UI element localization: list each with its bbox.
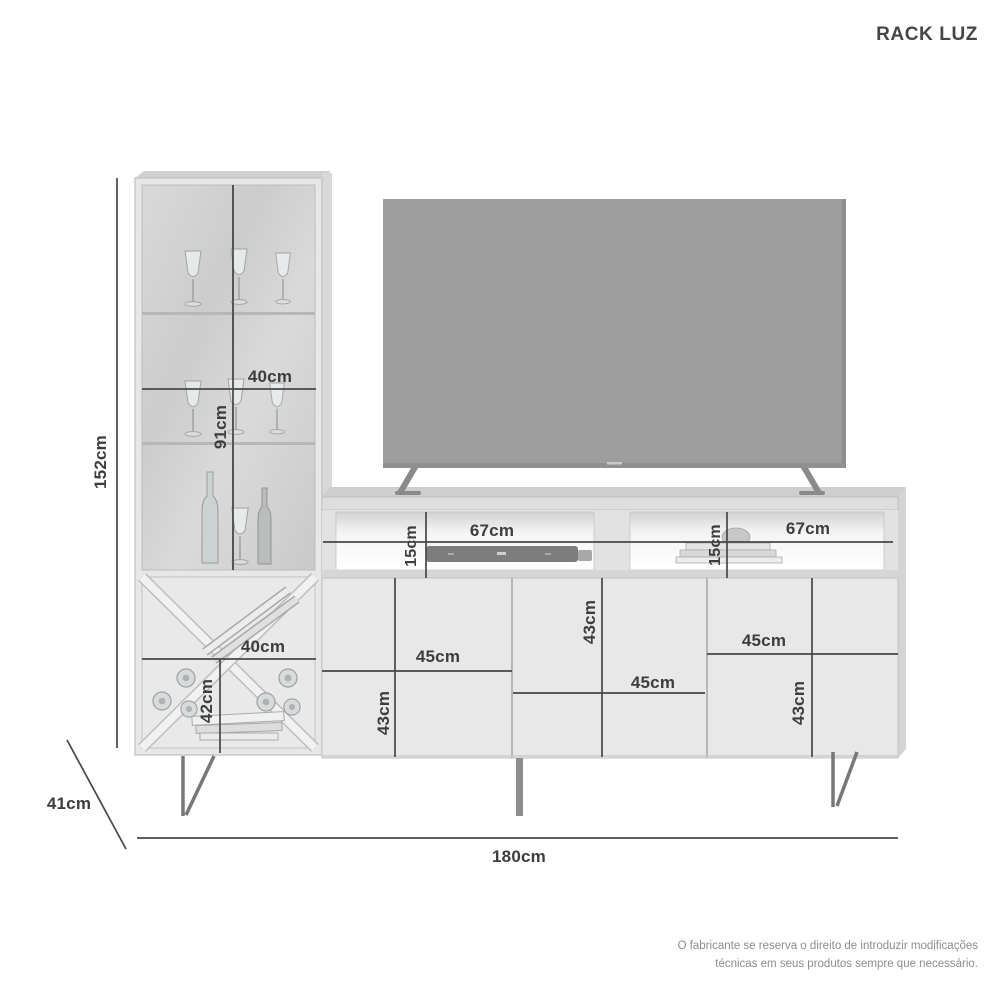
legs bbox=[183, 752, 857, 816]
tv-logo bbox=[607, 462, 622, 465]
label-winerack-height: 42cm bbox=[197, 679, 217, 723]
stand-right-side bbox=[898, 487, 906, 758]
label-lower-width: 40cm bbox=[241, 637, 285, 657]
cabinet-top-surface bbox=[135, 171, 331, 178]
tv bbox=[383, 199, 846, 495]
label-door-height-right: 43cm bbox=[789, 681, 809, 725]
disclaimer-line-1: O fabricante se reserva o direito de int… bbox=[678, 938, 978, 956]
soundbar bbox=[426, 546, 592, 562]
label-shelf-width-left: 67cm bbox=[470, 521, 514, 541]
page-title: RACK LUZ bbox=[876, 24, 978, 46]
manufacturer-disclaimer: O fabricante se reserva o direito de int… bbox=[678, 938, 978, 974]
disclaimer-line-2: técnicas em seus produtos sempre que nec… bbox=[678, 956, 978, 974]
label-shelf-height-right: 15cm bbox=[707, 524, 725, 566]
label-total-width: 180cm bbox=[492, 847, 546, 867]
label-door-width-right: 45cm bbox=[742, 631, 786, 651]
label-total-height: 152cm bbox=[91, 435, 111, 489]
glass-shelf-1 bbox=[142, 312, 315, 315]
shelf-bottom-board bbox=[322, 570, 898, 578]
label-depth: 41cm bbox=[47, 794, 91, 814]
label-door-width-left: 45cm bbox=[416, 647, 460, 667]
middle-leg bbox=[516, 758, 523, 816]
wine-rack bbox=[142, 577, 315, 748]
cabinet-right-side bbox=[322, 173, 332, 497]
tv-screen bbox=[383, 199, 846, 468]
label-door-width-middle: 45cm bbox=[631, 673, 675, 693]
label-shelf-width-right: 67cm bbox=[786, 519, 830, 539]
label-door-height-middle: 43cm bbox=[580, 600, 600, 644]
stand-top-panel bbox=[322, 497, 898, 510]
right-leg-diagonal bbox=[837, 752, 857, 806]
label-shelf-height-left: 15cm bbox=[403, 525, 421, 567]
label-upper-width: 40cm bbox=[248, 367, 292, 387]
cabinet-leg-diagonal bbox=[186, 756, 214, 815]
label-door-height-left: 43cm bbox=[374, 691, 394, 735]
diagram-canvas: RACK LUZ 152cm 40cm 91cm 40cm 42cm 41cm … bbox=[0, 0, 1000, 1000]
label-glass-height: 91cm bbox=[211, 405, 231, 449]
